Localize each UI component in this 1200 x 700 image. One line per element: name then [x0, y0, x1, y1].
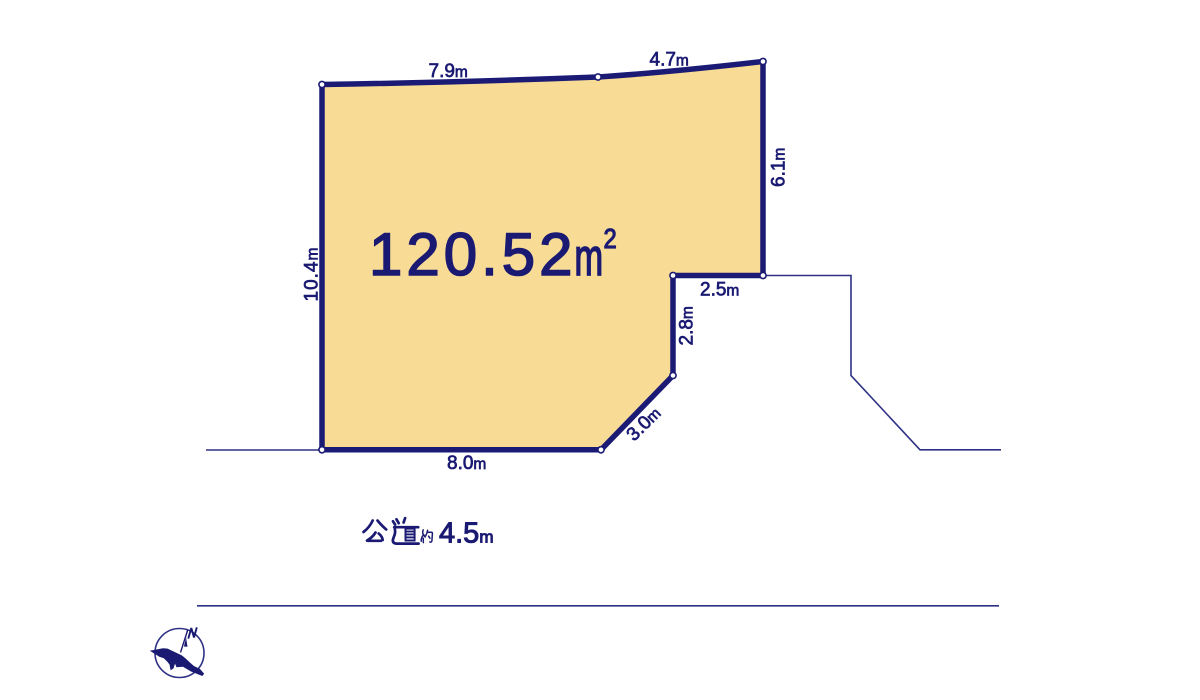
svg-text:6.1m: 6.1m — [769, 148, 790, 187]
svg-text:2.5m: 2.5m — [700, 280, 739, 301]
svg-text:4.5m: 4.5m — [439, 518, 494, 550]
svg-text:2: 2 — [604, 222, 617, 254]
svg-text:10.4m: 10.4m — [302, 247, 323, 302]
svg-text:120.52: 120.52 — [369, 221, 577, 288]
svg-text:m: m — [575, 229, 604, 287]
svg-text:2.8m: 2.8m — [677, 306, 698, 345]
svg-text:8.0m: 8.0m — [447, 453, 486, 474]
svg-text:4.7m: 4.7m — [650, 50, 689, 71]
svg-text:7.9m: 7.9m — [429, 61, 468, 82]
